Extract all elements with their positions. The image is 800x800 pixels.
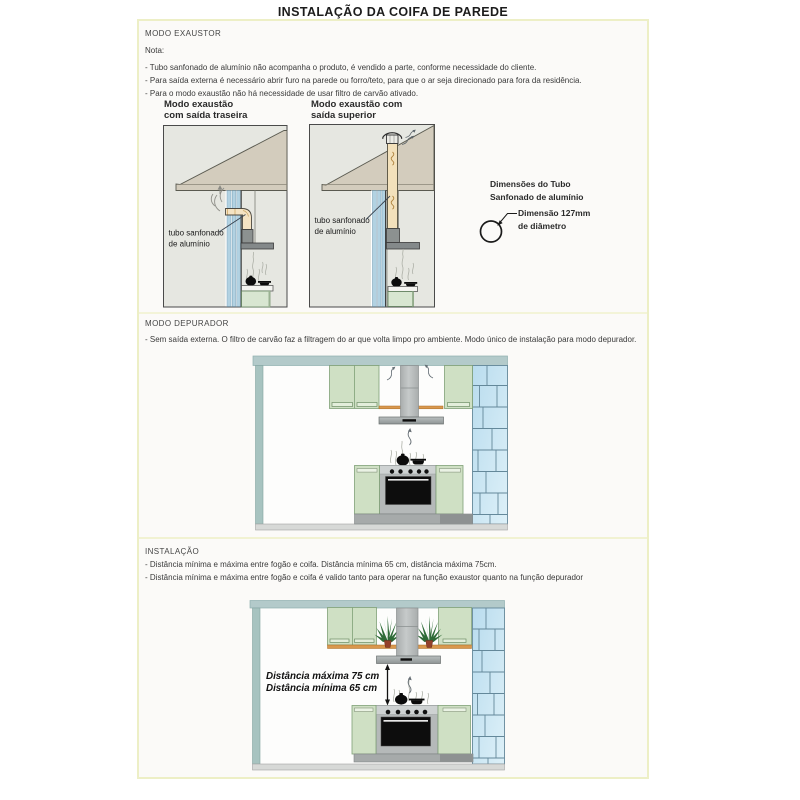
svg-text:tubo sanfonado: tubo sanfonado — [169, 229, 225, 238]
svg-text:de alumínio: de alumínio — [169, 240, 211, 249]
svg-text:de alumínio: de alumínio — [315, 227, 357, 236]
svg-text:tubo sanfonado: tubo sanfonado — [315, 216, 371, 225]
